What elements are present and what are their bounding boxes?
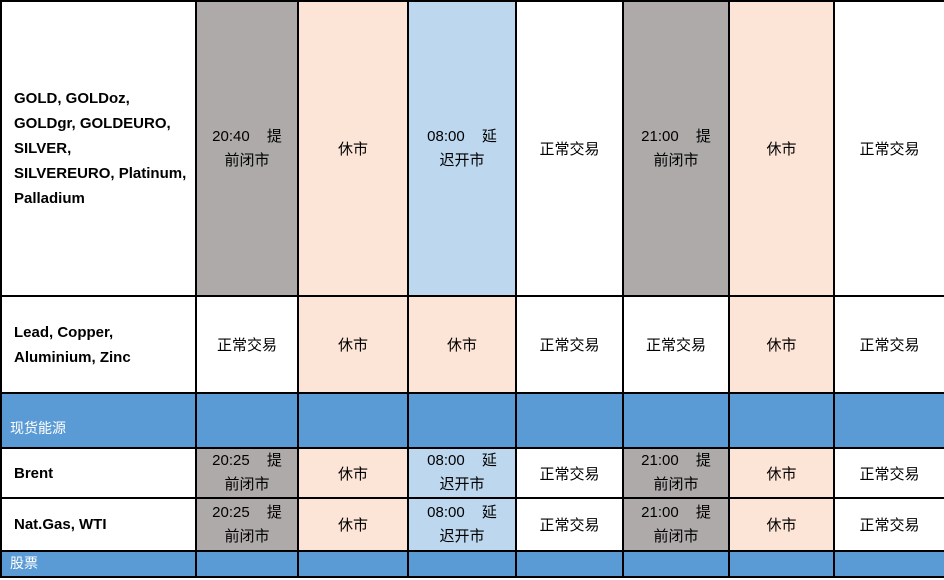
schedule-status-cell: 正常交易 [834, 296, 944, 393]
section-empty-cell [729, 393, 834, 448]
product-name-line: GOLDgr, GOLDEURO, [14, 111, 195, 136]
schedule-status-cell: 正常交易 [834, 498, 944, 551]
product-row-precious-metals: GOLD, GOLDoz,GOLDgr, GOLDEURO,SILVER,SIL… [1, 1, 944, 296]
schedule-time-line: 前闭市 [197, 525, 297, 549]
schedule-time-line: 迟开市 [409, 473, 515, 497]
schedule-time-line: 前闭市 [624, 525, 728, 549]
schedule-status-cell: 正常交易 [516, 448, 623, 498]
schedule-status-cell: 正常交易 [834, 1, 944, 296]
schedule-status-cell: 正常交易 [623, 296, 729, 393]
schedule-time-line: 前闭市 [624, 149, 728, 173]
section-label-cell: 股票 [1, 551, 196, 577]
section-empty-cell [623, 393, 729, 448]
product-row-base-metals: Lead, Copper,Aluminium, Zinc正常交易休市休市正常交易… [1, 296, 944, 393]
schedule-status-cell: 正常交易 [834, 448, 944, 498]
schedule-time-line: 21:00 提 [624, 449, 728, 473]
product-row-natgas-wti: Nat.Gas, WTI20:25 提前闭市休市08:00 延迟开市正常交易21… [1, 498, 944, 551]
trading-hours-rows: GOLD, GOLDoz,GOLDgr, GOLDEURO,SILVER,SIL… [1, 1, 944, 577]
product-name-line: Palladium [14, 186, 195, 211]
schedule-time-cell: 21:00 提前闭市 [623, 498, 729, 551]
section-empty-cell [516, 393, 623, 448]
schedule-time-cell: 20:40 提前闭市 [196, 1, 298, 296]
product-row-brent: Brent20:25 提前闭市休市08:00 延迟开市正常交易21:00 提前闭… [1, 448, 944, 498]
schedule-time-cell: 21:00 提前闭市 [623, 448, 729, 498]
schedule-status-cell: 休市 [729, 296, 834, 393]
schedule-time-line: 21:00 提 [624, 501, 728, 525]
schedule-time-line: 前闭市 [197, 473, 297, 497]
schedule-time-line: 前闭市 [624, 473, 728, 497]
product-name-line: SILVER, [14, 136, 195, 161]
product-names-cell: GOLD, GOLDoz,GOLDgr, GOLDEURO,SILVER,SIL… [1, 1, 196, 296]
product-name-line: Nat.Gas, WTI [14, 512, 195, 537]
schedule-time-line: 前闭市 [197, 149, 297, 173]
section-empty-cell [623, 551, 729, 577]
product-names-cell: Lead, Copper,Aluminium, Zinc [1, 296, 196, 393]
schedule-time-cell: 08:00 延迟开市 [408, 498, 516, 551]
section-empty-cell [298, 393, 408, 448]
section-empty-cell [834, 393, 944, 448]
schedule-time-line: 21:00 提 [624, 125, 728, 149]
schedule-time-line: 迟开市 [409, 149, 515, 173]
schedule-status-cell: 正常交易 [516, 498, 623, 551]
schedule-status-cell: 休市 [298, 498, 408, 551]
schedule-time-line: 迟开市 [409, 525, 515, 549]
product-names-cell: Nat.Gas, WTI [1, 498, 196, 551]
schedule-time-cell: 08:00 延迟开市 [408, 448, 516, 498]
section-row-spot-energy: 现货能源 [1, 393, 944, 448]
schedule-status-cell: 休市 [298, 448, 408, 498]
schedule-time-line: 08:00 延 [409, 125, 515, 149]
section-empty-cell [729, 551, 834, 577]
schedule-status-cell: 休市 [729, 498, 834, 551]
trading-hours-table: GOLD, GOLDoz,GOLDgr, GOLDEURO,SILVER,SIL… [0, 0, 944, 578]
schedule-time-cell: 20:25 提前闭市 [196, 448, 298, 498]
section-empty-cell [196, 393, 298, 448]
product-names-cell: Brent [1, 448, 196, 498]
section-empty-cell [196, 551, 298, 577]
schedule-time-line: 20:40 提 [197, 125, 297, 149]
schedule-time-cell: 08:00 延迟开市 [408, 1, 516, 296]
schedule-time-cell: 20:25 提前闭市 [196, 498, 298, 551]
section-label-cell: 现货能源 [1, 393, 196, 448]
schedule-status-cell: 休市 [729, 1, 834, 296]
schedule-time-line: 08:00 延 [409, 449, 515, 473]
section-empty-cell [408, 393, 516, 448]
schedule-status-cell: 正常交易 [516, 1, 623, 296]
schedule-status-cell: 正常交易 [516, 296, 623, 393]
section-row-stocks: 股票 [1, 551, 944, 577]
product-name-line: GOLD, GOLDoz, [14, 86, 195, 111]
schedule-time-line: 08:00 延 [409, 501, 515, 525]
schedule-status-cell: 休市 [729, 448, 834, 498]
schedule-status-cell: 休市 [298, 296, 408, 393]
schedule-time-line: 20:25 提 [197, 501, 297, 525]
product-name-line: Aluminium, Zinc [14, 345, 195, 370]
schedule-status-cell: 休市 [298, 1, 408, 296]
schedule-time-cell: 21:00 提前闭市 [623, 1, 729, 296]
product-name-line: Brent [14, 461, 195, 486]
product-name-line: Lead, Copper, [14, 320, 195, 345]
schedule-status-cell: 正常交易 [196, 296, 298, 393]
schedule-status-cell: 休市 [408, 296, 516, 393]
section-empty-cell [834, 551, 944, 577]
product-name-line: SILVEREURO, Platinum, [14, 161, 195, 186]
schedule-time-line: 20:25 提 [197, 449, 297, 473]
section-empty-cell [516, 551, 623, 577]
section-empty-cell [298, 551, 408, 577]
section-empty-cell [408, 551, 516, 577]
